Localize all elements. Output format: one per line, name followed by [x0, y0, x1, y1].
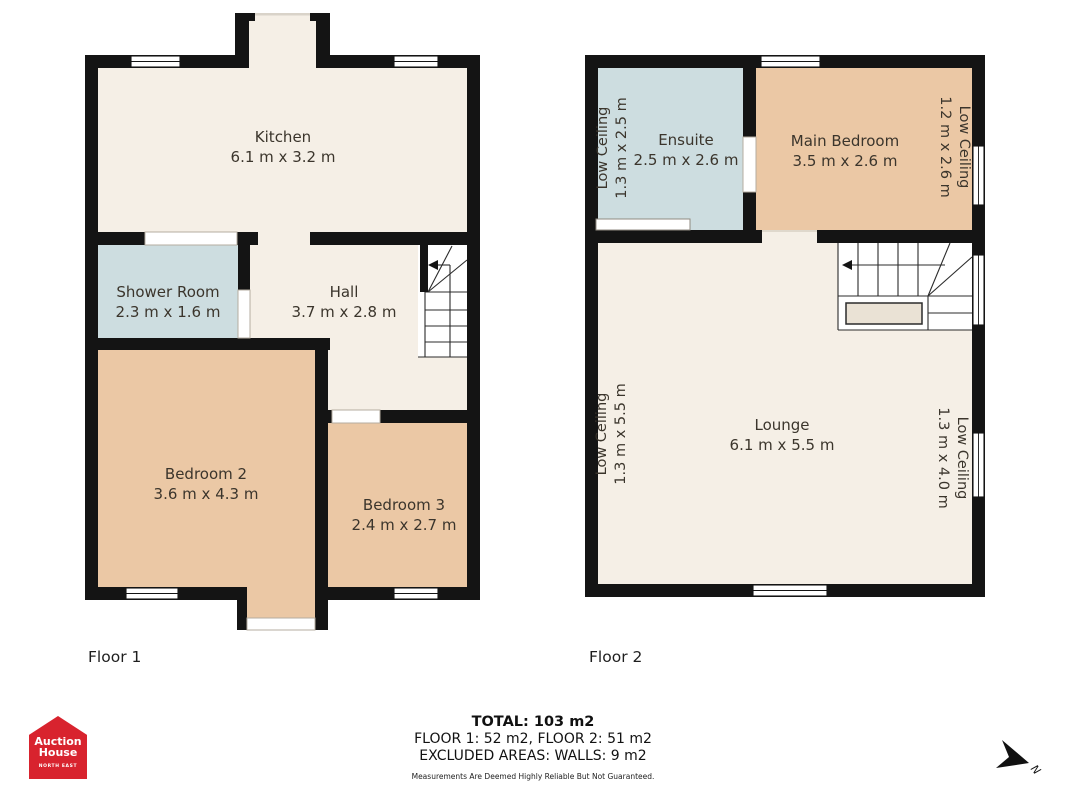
kitchen-label: Kitchen 6.1 m x 3.2 m [231, 127, 336, 167]
ensuite-label: Ensuite 2.5 m x 2.6 m [634, 130, 739, 170]
lounge-dims: 6.1 m x 5.5 m [730, 435, 835, 455]
floorplan-canvas: N [0, 0, 1067, 800]
main-bedroom-low-ceiling-dims: 1.2 m x 2.6 m [935, 96, 954, 197]
total-area: TOTAL: 103 m2 [412, 714, 655, 731]
stairwell-void [846, 303, 922, 324]
area-summary: TOTAL: 103 m2 FLOOR 1: 52 m2, FLOOR 2: 5… [412, 714, 655, 782]
floor1-caption: Floor 1 [88, 648, 141, 666]
kitchen-name: Kitchen [231, 127, 336, 147]
shower-room-name: Shower Room [116, 282, 221, 302]
bedroom3-label: Bedroom 3 2.4 m x 2.7 m [352, 495, 457, 535]
hall-label: Hall 3.7 m x 2.8 m [292, 282, 397, 322]
bedroom2-label: Bedroom 2 3.6 m x 4.3 m [154, 464, 259, 504]
ensuite-dims: 2.5 m x 2.6 m [634, 150, 739, 170]
main-bedroom-low-ceiling-text: Low Ceiling [954, 96, 973, 197]
main-bedroom-name: Main Bedroom [791, 131, 899, 151]
floor2-caption: Floor 2 [589, 648, 642, 666]
main-bedroom-dims: 3.5 m x 2.6 m [791, 151, 899, 171]
floorplan-page: N Kitchen 6.1 m x 3.2 m Shower Room 2.3 … [0, 0, 1067, 800]
ensuite-low-ceiling-strip [596, 219, 690, 230]
north-label: N [1028, 762, 1043, 777]
ensuite-low-ceiling-label: Low Ceiling 1.3 m x 2.5 m [594, 97, 632, 198]
lounge-low-ceiling-right-dims: 1.3 m x 4.0 m [933, 407, 952, 508]
ensuite-name: Ensuite [634, 130, 739, 150]
floor-areas: FLOOR 1: 52 m2, FLOOR 2: 51 m2 [412, 731, 655, 748]
lounge-low-ceiling-left-text: Low Ceiling [593, 383, 612, 484]
bedroom2-dims: 3.6 m x 4.3 m [154, 484, 259, 504]
main-bedroom-label: Main Bedroom 3.5 m x 2.6 m [791, 131, 899, 171]
hall-name: Hall [292, 282, 397, 302]
lounge-low-ceiling-right-text: Low Ceiling [952, 407, 971, 508]
north-compass: N [996, 740, 1043, 777]
floor2-doors [743, 137, 756, 192]
bedroom3-name: Bedroom 3 [352, 495, 457, 515]
shower-room-label: Shower Room 2.3 m x 1.6 m [116, 282, 221, 322]
shower-room-dims: 2.3 m x 1.6 m [116, 302, 221, 322]
bedroom2-name: Bedroom 2 [154, 464, 259, 484]
logo-region: NORTH EAST [39, 764, 77, 769]
measurement-disclaimer: Measurements Are Deemed Highly Reliable … [412, 772, 655, 782]
ensuite-low-ceiling-text: Low Ceiling [594, 97, 613, 198]
north-arrow-icon [996, 740, 1029, 768]
lounge-low-ceiling-left-dims: 1.3 m x 5.5 m [612, 383, 631, 484]
floor2-stairs [838, 235, 972, 330]
logo-line2: House [39, 747, 78, 759]
bedroom3-dims: 2.4 m x 2.7 m [352, 515, 457, 535]
ensuite-low-ceiling-dims: 1.3 m x 2.5 m [613, 97, 632, 198]
kitchen-dims: 6.1 m x 3.2 m [231, 147, 336, 167]
lounge-name: Lounge [730, 415, 835, 435]
main-bedroom-low-ceiling-label: Low Ceiling 1.2 m x 2.6 m [935, 96, 973, 197]
lounge-low-ceiling-left-label: Low Ceiling 1.3 m x 5.5 m [593, 383, 631, 484]
lounge-label: Lounge 6.1 m x 5.5 m [730, 415, 835, 455]
hall-dims: 3.7 m x 2.8 m [292, 302, 397, 322]
lounge-low-ceiling-right-label: Low Ceiling 1.3 m x 4.0 m [933, 407, 971, 508]
excluded-areas: EXCLUDED AREAS: WALLS: 9 m2 [412, 748, 655, 765]
